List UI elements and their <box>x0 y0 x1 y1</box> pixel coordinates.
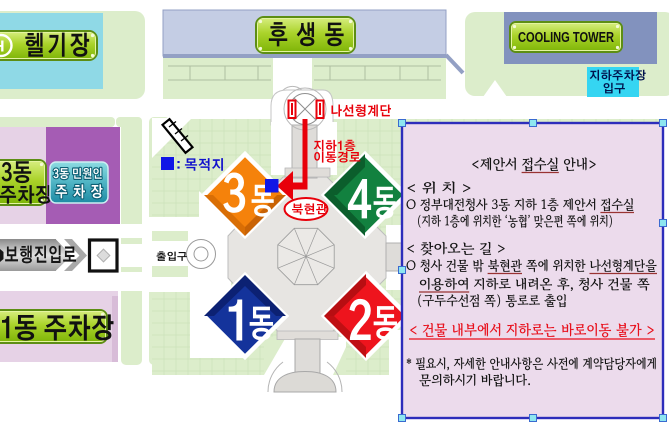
svg-text:H: H <box>0 39 5 56</box>
svg-text:COOLING TOWER: COOLING TOWER <box>518 30 614 46</box>
